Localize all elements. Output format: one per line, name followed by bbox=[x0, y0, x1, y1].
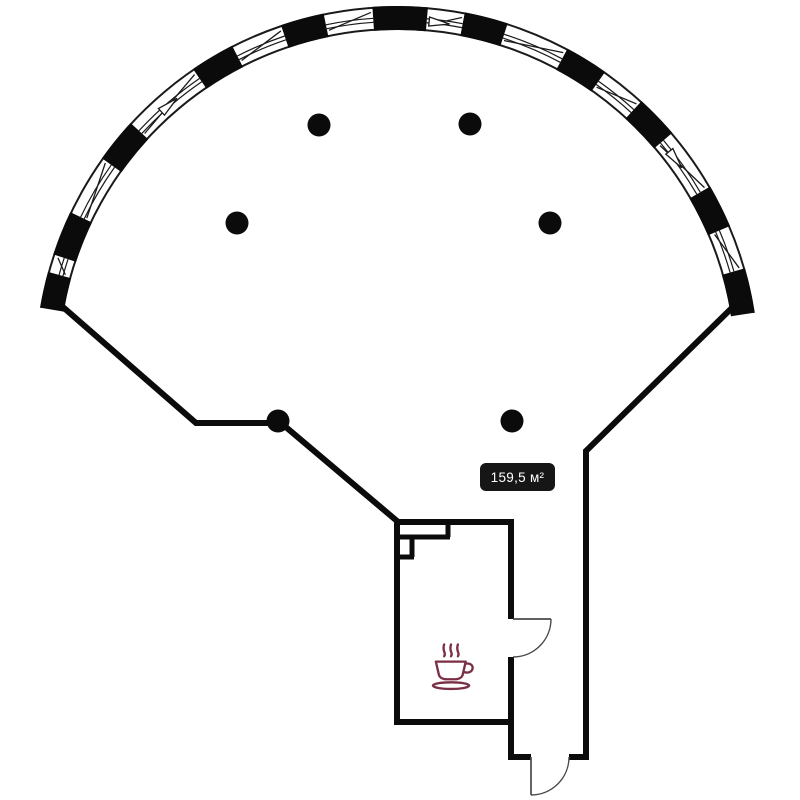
coffee-cup-icon bbox=[429, 639, 476, 697]
facade-inner-line bbox=[63, 29, 732, 316]
door-swing bbox=[513, 619, 551, 657]
door-swing bbox=[531, 757, 569, 795]
steam-line bbox=[457, 645, 458, 657]
window-pier bbox=[700, 192, 719, 230]
steam-line bbox=[443, 645, 444, 657]
column-dot bbox=[501, 410, 524, 433]
window-glazing-diagonal bbox=[329, 12, 371, 30]
steam-line bbox=[450, 645, 451, 657]
floor-plan-drawing bbox=[0, 0, 800, 800]
column-dot bbox=[539, 212, 562, 235]
area-badge: 159,5 м² bbox=[480, 463, 555, 491]
window-glazing-diagonal bbox=[58, 258, 65, 275]
column-dot bbox=[226, 212, 249, 235]
saucer bbox=[433, 682, 469, 689]
wall-outline bbox=[511, 657, 531, 757]
cup-body bbox=[436, 662, 466, 680]
window-pier bbox=[112, 131, 140, 165]
window-glazing-diagonal bbox=[597, 87, 637, 104]
floor-plan: 159,5 м² bbox=[0, 0, 800, 800]
window-pier bbox=[562, 59, 598, 81]
window-pier bbox=[463, 24, 504, 35]
window-pier bbox=[633, 110, 663, 141]
window-pier bbox=[65, 217, 81, 258]
column-dot bbox=[459, 113, 482, 136]
facade-outer-line bbox=[41, 7, 754, 313]
column-dot bbox=[267, 410, 290, 433]
window-pier bbox=[200, 56, 238, 78]
column-dot bbox=[308, 114, 331, 137]
wall-outline bbox=[569, 299, 741, 757]
window-glazing-diagonal bbox=[242, 31, 281, 61]
area-label: 159,5 м² bbox=[491, 470, 545, 485]
window-pier bbox=[285, 25, 326, 36]
window-pier bbox=[373, 18, 427, 19]
